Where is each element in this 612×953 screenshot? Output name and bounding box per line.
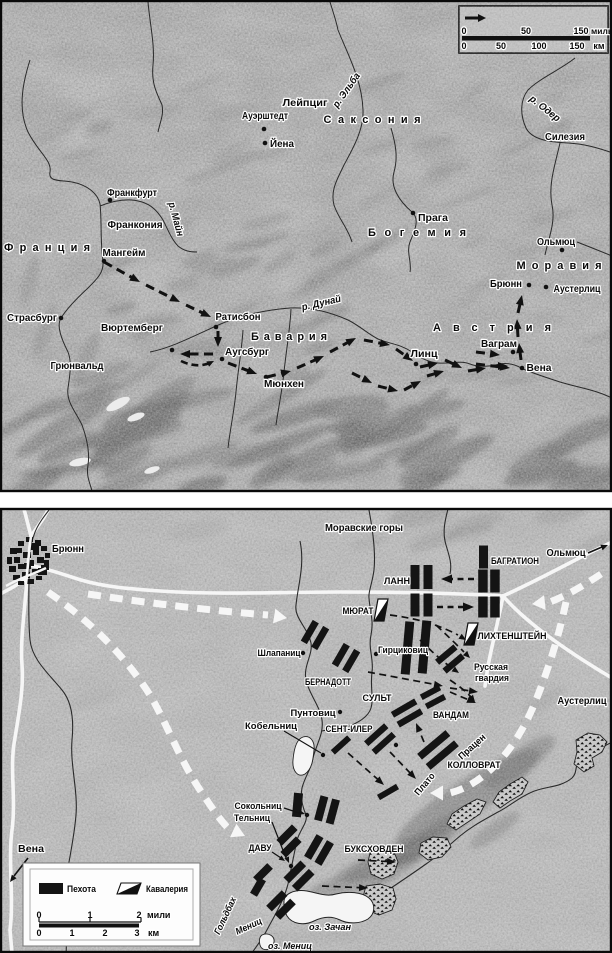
- svg-text:0: 0: [36, 928, 41, 938]
- svg-text:ЛАНН: ЛАНН: [384, 576, 410, 587]
- svg-text:Мангейм: Мангейм: [103, 248, 146, 259]
- svg-text:гвардия: гвардия: [475, 673, 509, 684]
- svg-text:миль: миль: [591, 26, 612, 36]
- svg-text:ЛИХТЕНШТЕЙН: ЛИХТЕНШТЕЙН: [478, 630, 547, 642]
- svg-text:Линц: Линц: [411, 349, 439, 360]
- svg-text:2: 2: [102, 928, 107, 938]
- svg-text:Аустерлиц: Аустерлиц: [558, 696, 608, 707]
- svg-text:Силезия: Силезия: [545, 132, 585, 143]
- svg-text:Франкония: Франкония: [108, 220, 163, 231]
- svg-text:Прага: Прага: [418, 213, 448, 224]
- svg-text:Вена: Вена: [18, 844, 44, 855]
- svg-text:50: 50: [521, 26, 531, 36]
- svg-text:Вена: Вена: [527, 363, 552, 374]
- svg-text:50: 50: [496, 41, 506, 51]
- svg-text:1: 1: [69, 928, 74, 938]
- svg-text:Грюнвальд: Грюнвальд: [51, 361, 105, 372]
- svg-text:Пехота: Пехота: [67, 884, 97, 895]
- svg-text:Сокольниц: Сокольниц: [235, 801, 282, 812]
- svg-text:СУЛЬТ: СУЛЬТ: [363, 693, 392, 704]
- svg-text:БАГРАТИОН: БАГРАТИОН: [491, 556, 539, 567]
- svg-text:км: км: [593, 41, 605, 51]
- svg-text:Кавалерия: Кавалерия: [146, 884, 188, 895]
- svg-text:Страсбург: Страсбург: [7, 312, 57, 324]
- svg-text:Франкфурт: Франкфурт: [107, 187, 157, 199]
- svg-text:Брюнн: Брюнн: [52, 544, 84, 555]
- svg-text:Лейпциг: Лейпциг: [283, 98, 328, 109]
- svg-text:Мюнхен: Мюнхен: [264, 379, 304, 390]
- svg-text:Русская: Русская: [474, 662, 508, 673]
- svg-text:БЕРНАДОТТ: БЕРНАДОТТ: [305, 677, 351, 688]
- svg-text:Ратисбон: Ратисбон: [216, 311, 261, 323]
- svg-text:Ольмюц: Ольмюц: [537, 237, 576, 248]
- svg-text:ВАНДАМ: ВАНДАМ: [433, 710, 469, 721]
- svg-text:150: 150: [573, 26, 588, 36]
- svg-text:100: 100: [531, 41, 546, 51]
- svg-text:км: км: [148, 928, 160, 938]
- svg-text:Ольмюц: Ольмюц: [547, 548, 587, 559]
- svg-text:Аустерлиц: Аустерлиц: [554, 284, 602, 295]
- svg-text:БУКСХОВДЕН: БУКСХОВДЕН: [345, 844, 404, 855]
- svg-text:МЮРАТ: МЮРАТ: [343, 606, 374, 617]
- svg-text:Брюнн: Брюнн: [490, 279, 522, 290]
- svg-text:Аугсбург: Аугсбург: [225, 346, 269, 358]
- svg-text:оз. Зачан: оз. Зачан: [309, 922, 351, 933]
- svg-text:Пунтовиц: Пунтовиц: [291, 708, 336, 719]
- svg-text:3: 3: [134, 928, 139, 938]
- svg-text:СЕНТ-ИЛЕР: СЕНТ-ИЛЕР: [326, 724, 374, 735]
- svg-text:КОЛЛОВРАТ: КОЛЛОВРАТ: [448, 760, 501, 771]
- svg-text:Кобельниц: Кобельниц: [245, 721, 297, 732]
- svg-text:Тельниц: Тельниц: [234, 813, 270, 824]
- svg-text:150: 150: [569, 41, 584, 51]
- svg-text:ДАВУ: ДАВУ: [249, 843, 272, 854]
- svg-text:Йена: Йена: [270, 137, 294, 150]
- svg-text:Ваграм: Ваграм: [481, 339, 517, 350]
- svg-text:Шлапаниц: Шлапаниц: [258, 648, 301, 659]
- svg-text:0: 0: [461, 26, 466, 36]
- svg-text:Моравские горы: Моравские горы: [325, 523, 403, 534]
- svg-text:Ауэрштедт: Ауэрштедт: [242, 111, 288, 122]
- svg-text:Вюртемберг: Вюртемберг: [101, 322, 163, 334]
- svg-text:оз. Мениц: оз. Мениц: [268, 941, 312, 952]
- svg-text:0: 0: [461, 41, 466, 51]
- svg-text:мили: мили: [147, 910, 170, 920]
- svg-text:Гирциковиц: Гирциковиц: [378, 645, 428, 656]
